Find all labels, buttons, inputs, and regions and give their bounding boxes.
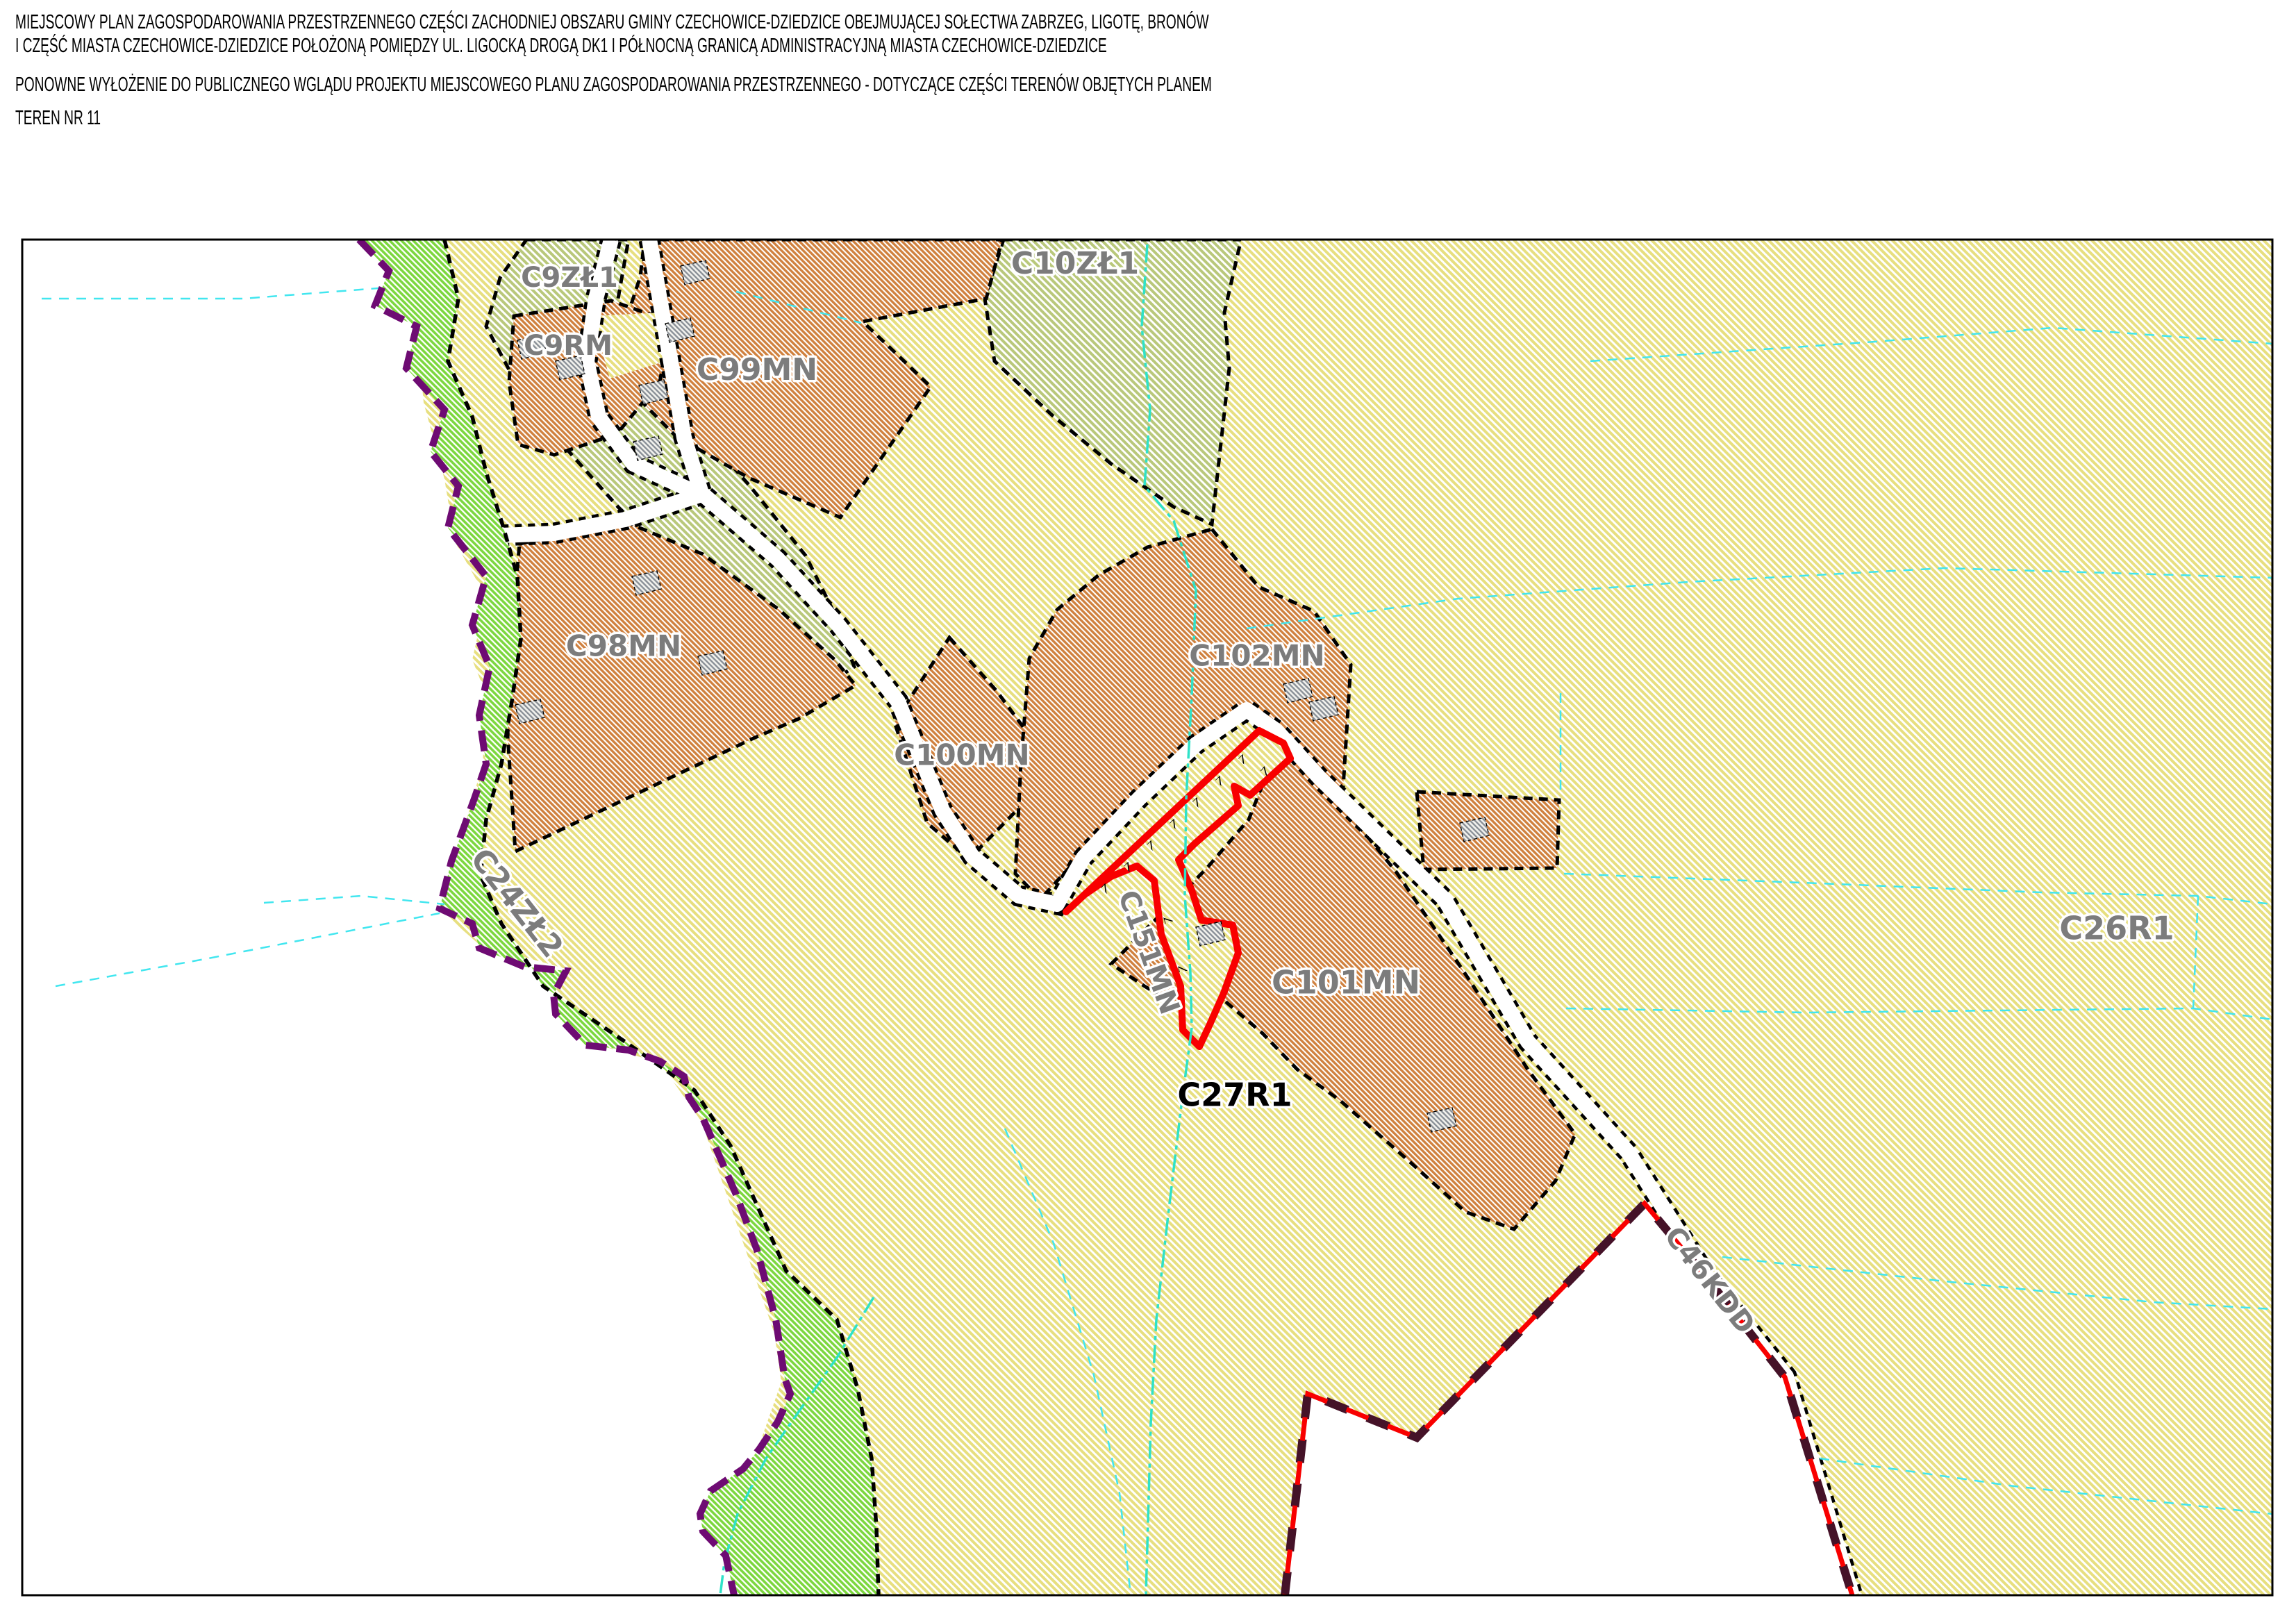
plan-sheet: MIEJSCOWY PLAN ZAGOSPODAROWANIA PRZESTRZ… bbox=[0, 0, 2296, 1623]
zone-label-c9zl1: C9ZŁ1 bbox=[521, 262, 618, 294]
plan-map: C9ZŁ1 C9RM C99MN C10ZŁ1 C98MN C100MN C10… bbox=[0, 0, 2296, 1623]
zone-label-c26r1: C26R1 bbox=[2059, 910, 2174, 947]
zone-label-c98mn: C98MN bbox=[566, 629, 681, 663]
zone-label-c27r1: C27R1 bbox=[1177, 1076, 1292, 1114]
zone-label-c100mn: C100MN bbox=[894, 738, 1029, 772]
zone-label-c101mn: C101MN bbox=[1272, 964, 1420, 1001]
zone-label-c102mn: C102MN bbox=[1189, 639, 1324, 673]
zone-label-c9rm: C9RM bbox=[524, 330, 613, 362]
zone-label-c10zl1: C10ZŁ1 bbox=[1011, 246, 1139, 281]
zone-label-c99mn: C99MN bbox=[697, 352, 817, 388]
